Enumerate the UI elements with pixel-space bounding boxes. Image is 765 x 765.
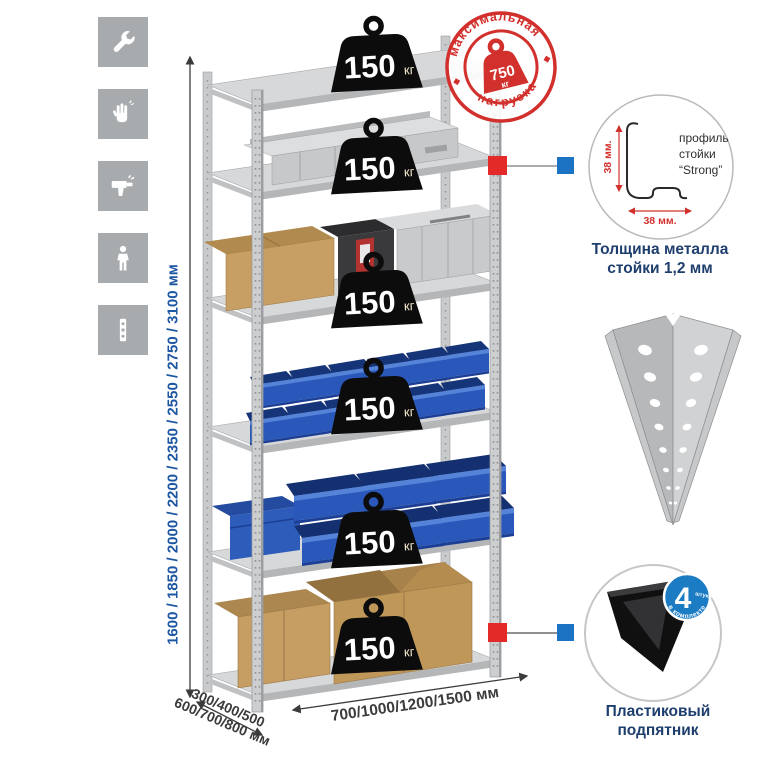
callout-marker-blue: [557, 624, 574, 641]
svg-text:кг: кг: [404, 538, 415, 554]
max-load-stamp: максимальная нагрузка 750 кг: [443, 9, 559, 125]
weight-handle-icon: [366, 360, 382, 376]
weight-handle-icon: [366, 120, 382, 136]
wrench-icon: [98, 17, 148, 67]
svg-text:38 мм.: 38 мм.: [643, 215, 676, 227]
foot-caption-line1: Пластиковый: [578, 702, 738, 721]
foot-caption-line2: подпятник: [578, 721, 738, 740]
svg-text:профиль: профиль: [679, 131, 729, 145]
shelf-load-badge: 150 кг: [317, 11, 433, 95]
svg-text:стойки: стойки: [679, 147, 716, 161]
svg-text:кг: кг: [404, 164, 415, 180]
weight-handle-icon: [366, 600, 382, 616]
svg-text:кг: кг: [404, 404, 415, 420]
callout-bottom: [488, 623, 574, 642]
callout-marker-red: [488, 156, 507, 175]
weight-handle-icon: [366, 494, 382, 510]
svg-text:38 мм.: 38 мм.: [602, 140, 614, 173]
svg-text:150: 150: [343, 150, 396, 188]
svg-text:150: 150: [343, 48, 396, 86]
product-diagram: 1600 / 1850 / 2000 / 2200 / 2350 / 2550 …: [0, 0, 765, 765]
weight-handle-icon: [366, 254, 382, 270]
gloves-icon: [98, 89, 148, 139]
svg-text:кг: кг: [404, 644, 415, 660]
sidebar: [98, 17, 148, 377]
weight-handle-icon: [366, 18, 382, 34]
profile-caption-line2: стойки 1,2 мм: [580, 259, 740, 278]
foot-caption: Пластиковый подпятник: [578, 702, 738, 741]
shelf-load-badge: 150 кг: [317, 593, 433, 677]
person-icon: [98, 233, 148, 283]
svg-text:150: 150: [343, 524, 396, 562]
svg-text:150: 150: [343, 390, 396, 428]
callout-top: [488, 156, 574, 175]
shelf-load-badge: 150 кг: [317, 247, 433, 331]
foot-photo: 4 штуки в комплекте: [583, 564, 728, 706]
profile-photo: [595, 300, 745, 535]
svg-text:кг: кг: [404, 62, 415, 78]
profile-caption: Толщина металла стойки 1,2 мм: [580, 240, 740, 279]
profile-caption-line1: Толщина металла: [580, 240, 740, 259]
foot-count-badge: 4 штуки в комплекте: [664, 574, 712, 620]
svg-text:“Strong”: “Strong”: [679, 163, 722, 177]
svg-text:150: 150: [343, 630, 396, 668]
svg-text:150: 150: [343, 284, 396, 322]
callout-marker-red: [488, 623, 507, 642]
svg-text:кг: кг: [404, 298, 415, 314]
drill-icon: [98, 161, 148, 211]
shelf-load-badge: 150 кг: [317, 113, 433, 197]
callout-marker-blue: [557, 157, 574, 174]
shelf-load-badge: 150 кг: [317, 353, 433, 437]
profile-strip-icon: [98, 305, 148, 355]
height-dimension-label: 1600 / 1850 / 2000 / 2200 / 2350 / 2550 …: [165, 205, 182, 705]
shelf-load-badge: 150 кг: [317, 487, 433, 571]
profile-detail-circle: 38 мм. 38 мм. профиль стойки “Strong”: [583, 90, 739, 246]
